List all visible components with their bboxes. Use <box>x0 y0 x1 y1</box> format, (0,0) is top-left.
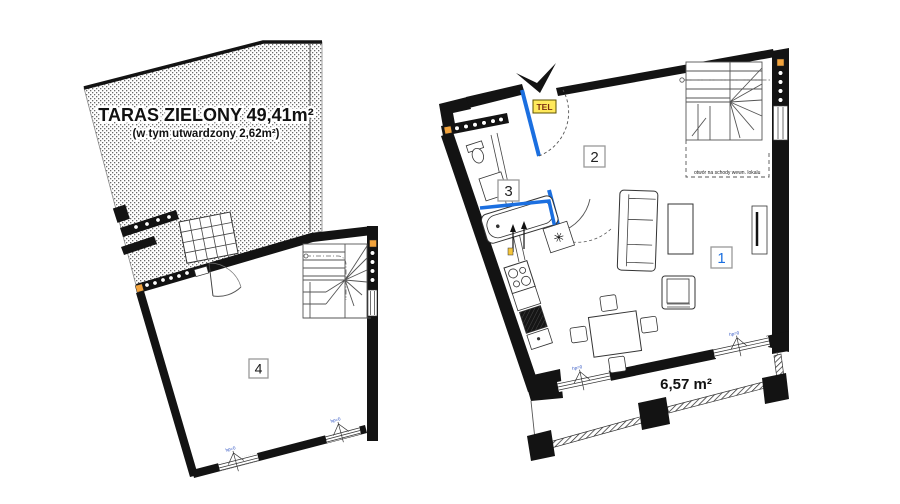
balcony-post <box>527 430 555 461</box>
armchair <box>662 276 695 309</box>
dining-chair <box>570 326 588 343</box>
toilet <box>466 141 488 165</box>
room-1-label-box: 1 <box>711 247 732 268</box>
kitchen-appliance <box>519 306 547 334</box>
balcony-area-label: 6,57 m² <box>660 376 712 393</box>
room-3-label: 3 <box>504 183 512 200</box>
room-3-label-box: 3 <box>498 180 519 201</box>
window-end-marker <box>370 240 377 247</box>
lower-window-2 <box>713 336 770 358</box>
staircase-upper <box>303 244 371 318</box>
annotation-text: hp=0 <box>729 330 740 337</box>
window-end-marker <box>777 59 784 66</box>
lower-window-1 <box>557 371 611 392</box>
balcony-post <box>638 397 670 430</box>
window-end-marker <box>135 284 144 293</box>
balcony-post <box>762 373 789 404</box>
staircase-lower: otwór na schody wewn. lokalu <box>680 62 770 177</box>
room-2-label: 2 <box>590 149 598 166</box>
dining-chair <box>608 356 626 373</box>
meter-mark <box>508 248 513 255</box>
terrace-title: TARAS ZIELONY 49,41m² <box>98 105 313 125</box>
dining-chair <box>640 316 658 333</box>
annotation-text: hp=0 <box>330 416 342 424</box>
lower-floor-plan: hp=0 hp=0 TEL <box>439 48 789 461</box>
floor-plan-drawing: TARAS ZIELONY 49,41m² (w tym utwardzony … <box>0 0 900 504</box>
room-4-label: 4 <box>255 361 263 377</box>
tel-sign-text: TEL <box>536 102 552 112</box>
upper-window-1 <box>218 453 259 471</box>
tv-cabinet <box>752 206 767 254</box>
tel-sign: TEL <box>533 100 556 113</box>
terrace-subtitle: (w tym utwardzony 2,62m²) <box>133 128 280 140</box>
stairs-opening-note: otwór na schody wewn. lokalu <box>694 170 761 176</box>
upper-floor-plan: TARAS ZIELONY 49,41m² (w tym utwardzony … <box>84 42 378 478</box>
dining-chair <box>600 295 618 312</box>
room-1-label: 1 <box>717 250 725 267</box>
room-2-label-box: 2 <box>584 146 605 167</box>
floor-plan-sheet: TARAS ZIELONY 49,41m² (w tym utwardzony … <box>0 0 900 504</box>
window-end-marker <box>444 126 452 134</box>
sofa <box>617 190 658 271</box>
annotation-text: hp=0 <box>225 445 237 453</box>
dining-table <box>588 311 641 357</box>
annotation-text: hp=0 <box>572 364 583 371</box>
room-4-label-box: 4 <box>249 359 268 378</box>
coffee-table <box>668 204 693 254</box>
